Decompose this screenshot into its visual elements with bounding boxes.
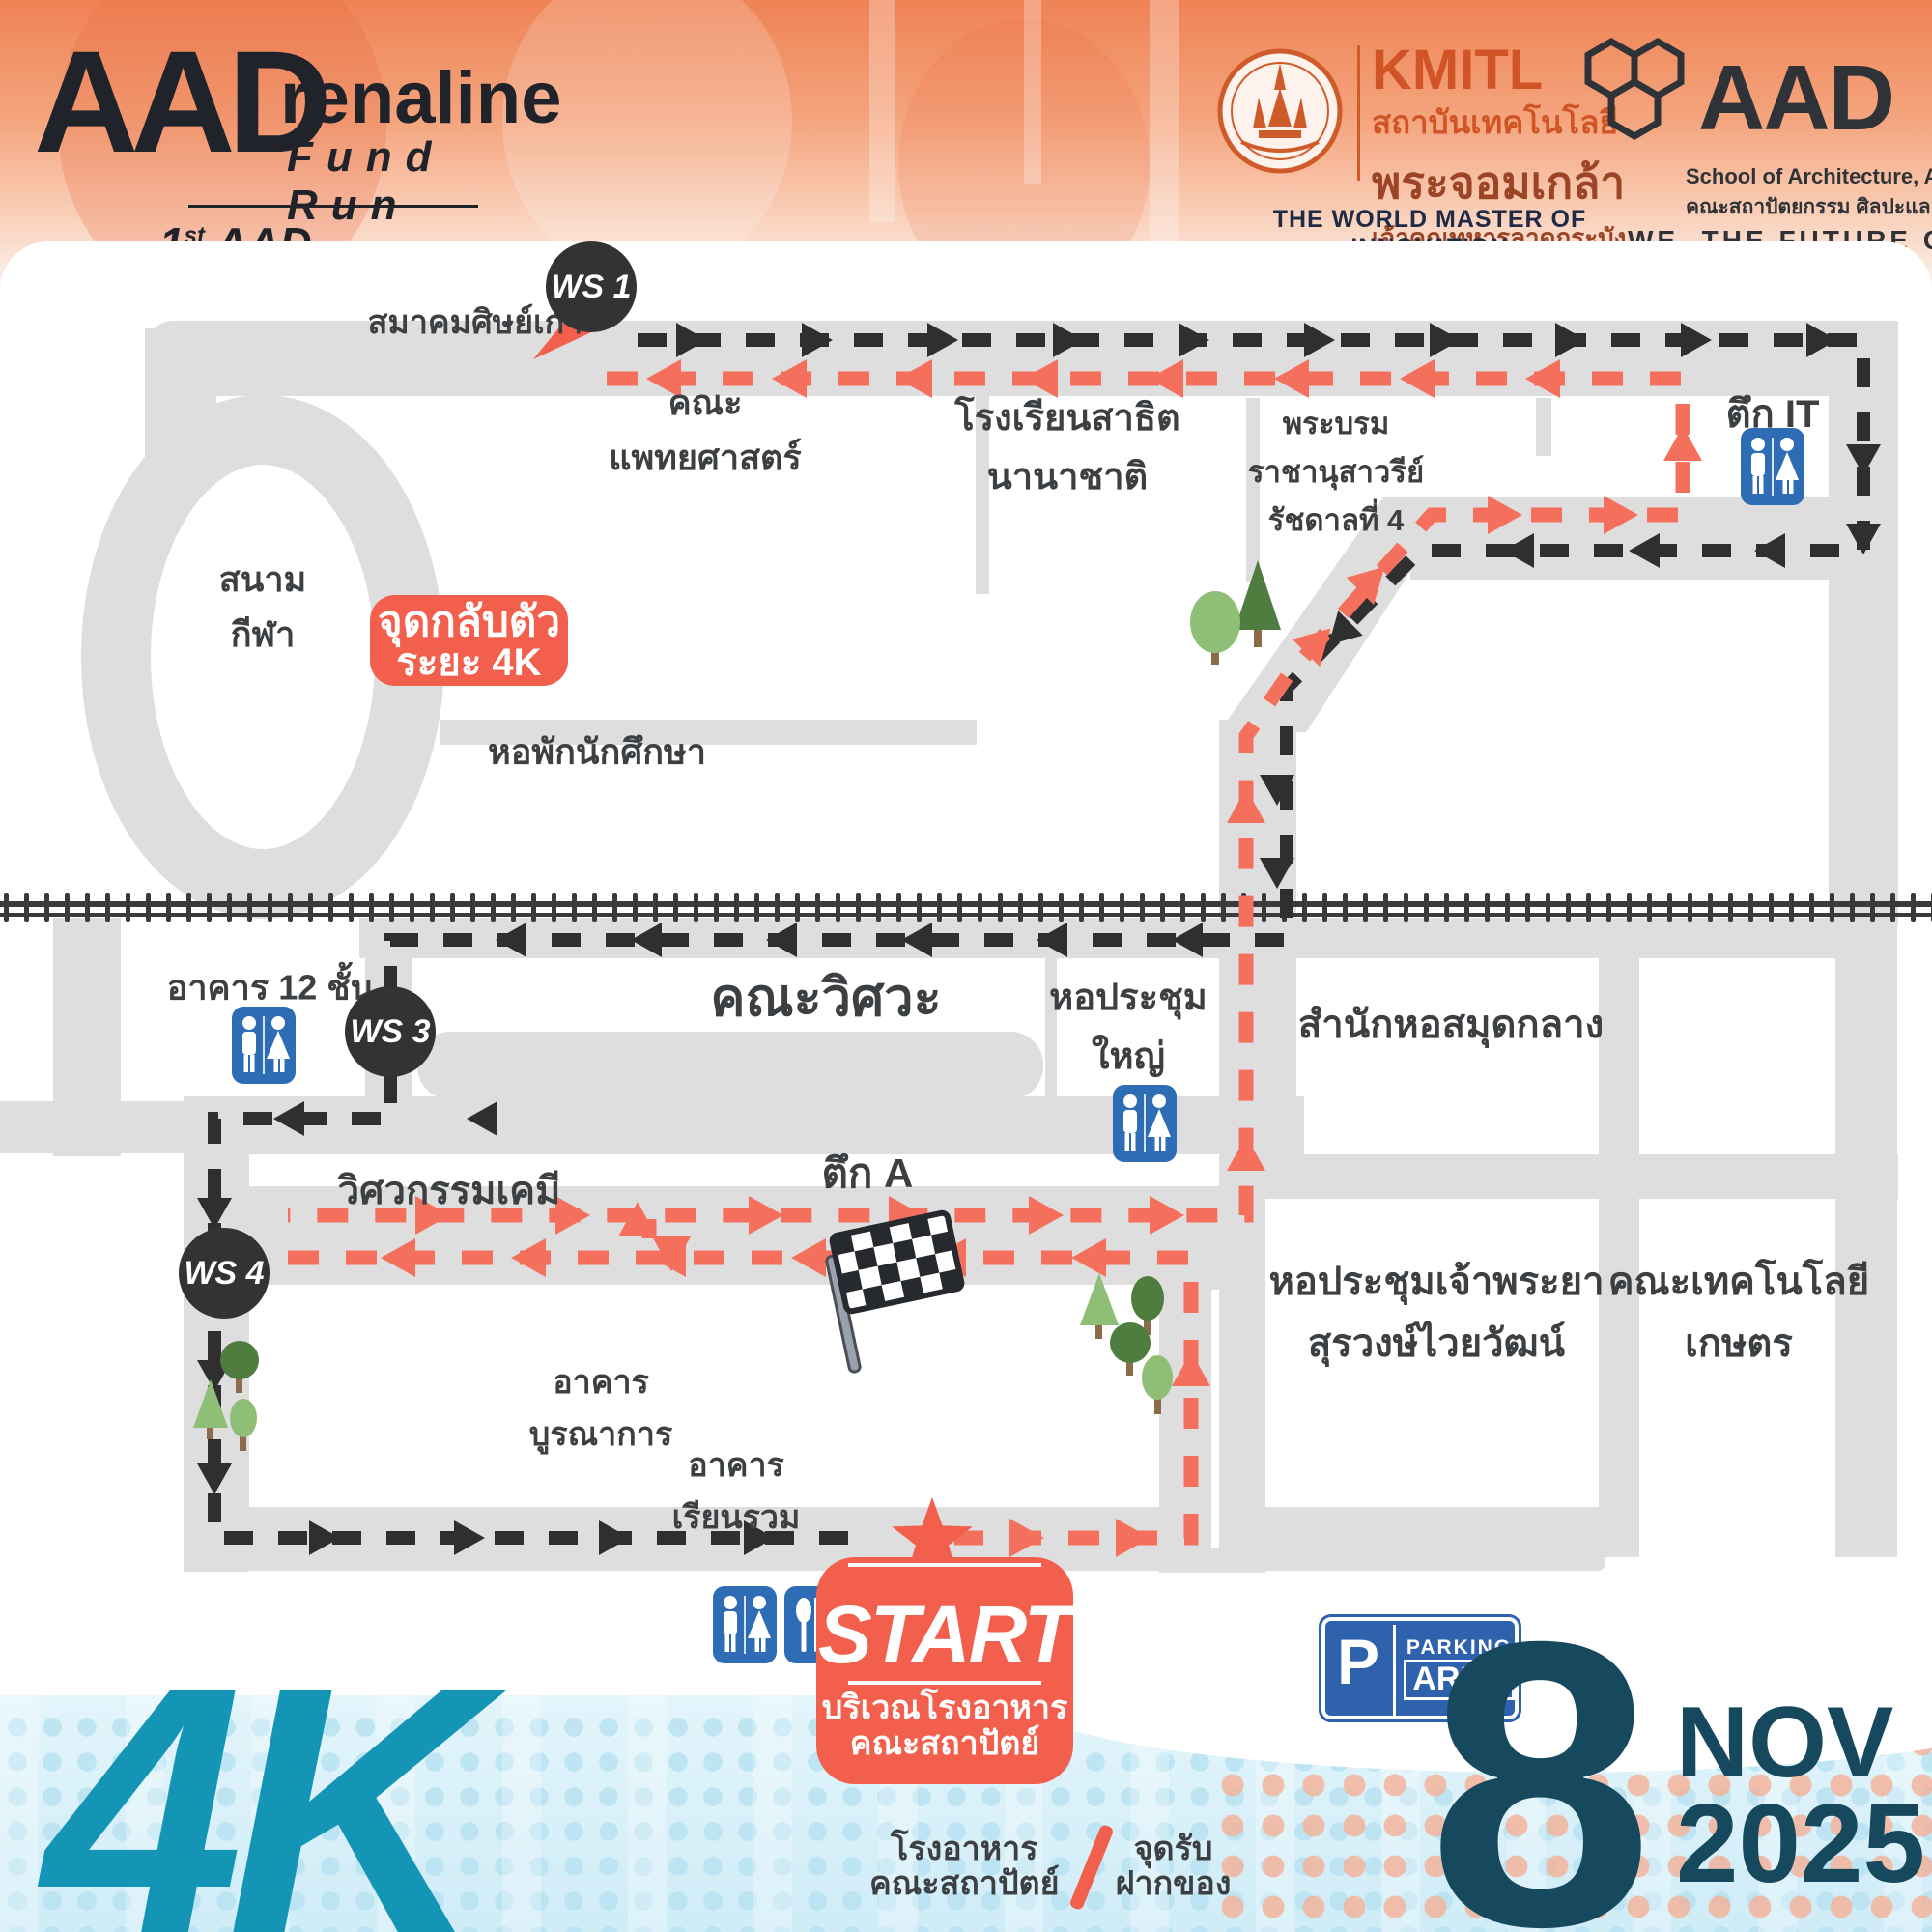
lane-divider — [1211, 1290, 1219, 1548]
label-agri-tech-line1: คณะเทคโนโลยี — [1608, 1250, 1869, 1312]
label-engineering: คณะวิศวะ — [710, 955, 941, 1038]
label-chao-aud-line1: หอประชุมเจ้าพระยา — [1268, 1250, 1604, 1312]
waypoint-ws4: WS 4 — [179, 1228, 270, 1319]
legend-cafeteria-line2: คณะสถาปัตย์ — [869, 1867, 1060, 1902]
label-learning: อาคาร เรียนรวม — [672, 1438, 801, 1543]
railway-track — [0, 893, 1932, 922]
restroom-icon — [232, 1007, 296, 1084]
label-monument: พระบรม ราชานุสาวรีย์ รัชดาลที่ 4 — [1248, 399, 1424, 544]
label-medicine-line1: คณะ — [609, 375, 802, 430]
label-chem-eng: วิศวกรรมเคมี — [338, 1159, 561, 1221]
label-building-a: ตึก A — [822, 1142, 914, 1206]
label-it-building: ตึก IT — [1726, 383, 1820, 444]
label-learning-line1: อาคาร — [672, 1438, 801, 1491]
start-rule — [848, 1681, 1041, 1685]
label-agri-tech: คณะเทคโนโลยี เกษตร — [1608, 1250, 1869, 1374]
event-day: 8 — [1428, 1582, 1654, 1932]
turnaround-line1: จุดกลับตัว — [370, 601, 568, 643]
label-integrated-line2: บูรณาการ — [529, 1407, 672, 1460]
legend-cafeteria-line1: โรงอาหาร — [869, 1833, 1060, 1867]
legend-deposit: จุดรับ ฝากของ — [1116, 1833, 1232, 1901]
label-b12: อาคาร 12 ชั้น — [167, 960, 375, 1015]
tree-icon — [1235, 560, 1281, 647]
restroom-icon — [713, 1586, 777, 1663]
legend-deposit-line2: ฝากของ — [1116, 1867, 1232, 1902]
label-chao-aud: หอประชุมเจ้าพระยา สุรวงษ์ไวยวัฒน์ — [1268, 1250, 1604, 1374]
label-grand-aud-line1: หอประชุม — [1049, 967, 1207, 1026]
restroom-icon — [1113, 1085, 1177, 1162]
parking-p: P — [1337, 1625, 1396, 1716]
label-stadium: สนาม กีฬา — [219, 552, 307, 662]
legend-cafeteria: โรงอาหาร คณะสถาปัตย์ — [869, 1833, 1060, 1901]
label-chao-aud-line2: สุรวงษ์ไวยวัฒน์ — [1268, 1312, 1604, 1374]
label-satit-line1: โรงเรียนสาธิต — [954, 387, 1179, 446]
legend-deposit-line1: จุดรับ — [1116, 1833, 1232, 1867]
legend: โรงอาหาร คณะสถาปัตย์ จุดรับ ฝากของ — [705, 1824, 1231, 1911]
label-dorm: หอพักนักศึกษา — [488, 724, 706, 780]
label-medicine: คณะ แพทยศาสตร์ — [609, 375, 802, 485]
legend-slash — [1068, 1824, 1114, 1912]
start-rule — [848, 1563, 1041, 1567]
event-month: NOV — [1676, 1692, 1893, 1793]
start-sub1: บริเวณโรงอาหาร — [816, 1690, 1073, 1726]
label-integrated: อาคาร บูรณาการ — [529, 1355, 672, 1460]
label-grand-aud: หอประชุม ใหญ่ — [1049, 967, 1207, 1085]
label-medicine-line2: แพทยศาสตร์ — [609, 430, 802, 485]
label-monument-line2: ราชานุสาวรีย์ — [1248, 447, 1424, 496]
start-badge: START บริเวณโรงอาหาร คณะสถาปัตย์ — [816, 1557, 1073, 1784]
event-year: 2025 — [1676, 1787, 1925, 1899]
label-monument-line1: พระบรม — [1248, 399, 1424, 447]
label-satit: โรงเรียนสาธิต นานาชาติ — [954, 387, 1179, 505]
distance-4k: 4K — [43, 1633, 469, 1932]
poster: AAD renaline Fund Run 1st AAD Charity Ru… — [0, 0, 1932, 1932]
label-grand-aud-line2: ใหญ่ — [1049, 1026, 1207, 1085]
tree-icon — [1190, 591, 1240, 665]
label-integrated-line1: อาคาร — [529, 1355, 672, 1407]
label-library: สำนักหอสมุดกลาง — [1298, 993, 1604, 1055]
label-stadium-line2: กีฬา — [219, 607, 307, 662]
label-stadium-line1: สนาม — [219, 552, 307, 607]
label-monument-line3: รัชดาลที่ 4 — [1248, 496, 1424, 544]
waypoint-ws3: WS 3 — [345, 986, 436, 1077]
route-map: สมาคมศิษย์เก่า คณะ แพทยศาสตร์ โรงเรียนสา… — [0, 241, 1932, 1710]
label-satit-line2: นานาชาติ — [954, 446, 1179, 505]
start-sub2: คณะสถาปัตย์ — [816, 1726, 1073, 1762]
start-title: START — [816, 1594, 1073, 1675]
label-agri-tech-line2: เกษตร — [1608, 1312, 1869, 1374]
turnaround-line2: ระยะ 4K — [370, 643, 568, 682]
turnaround-badge: จุดกลับตัว ระยะ 4K — [370, 595, 568, 686]
label-learning-line2: เรียนรวม — [672, 1491, 801, 1543]
checkered-flag-icon — [822, 1212, 976, 1373]
waypoint-ws1: WS 1 — [546, 241, 637, 332]
